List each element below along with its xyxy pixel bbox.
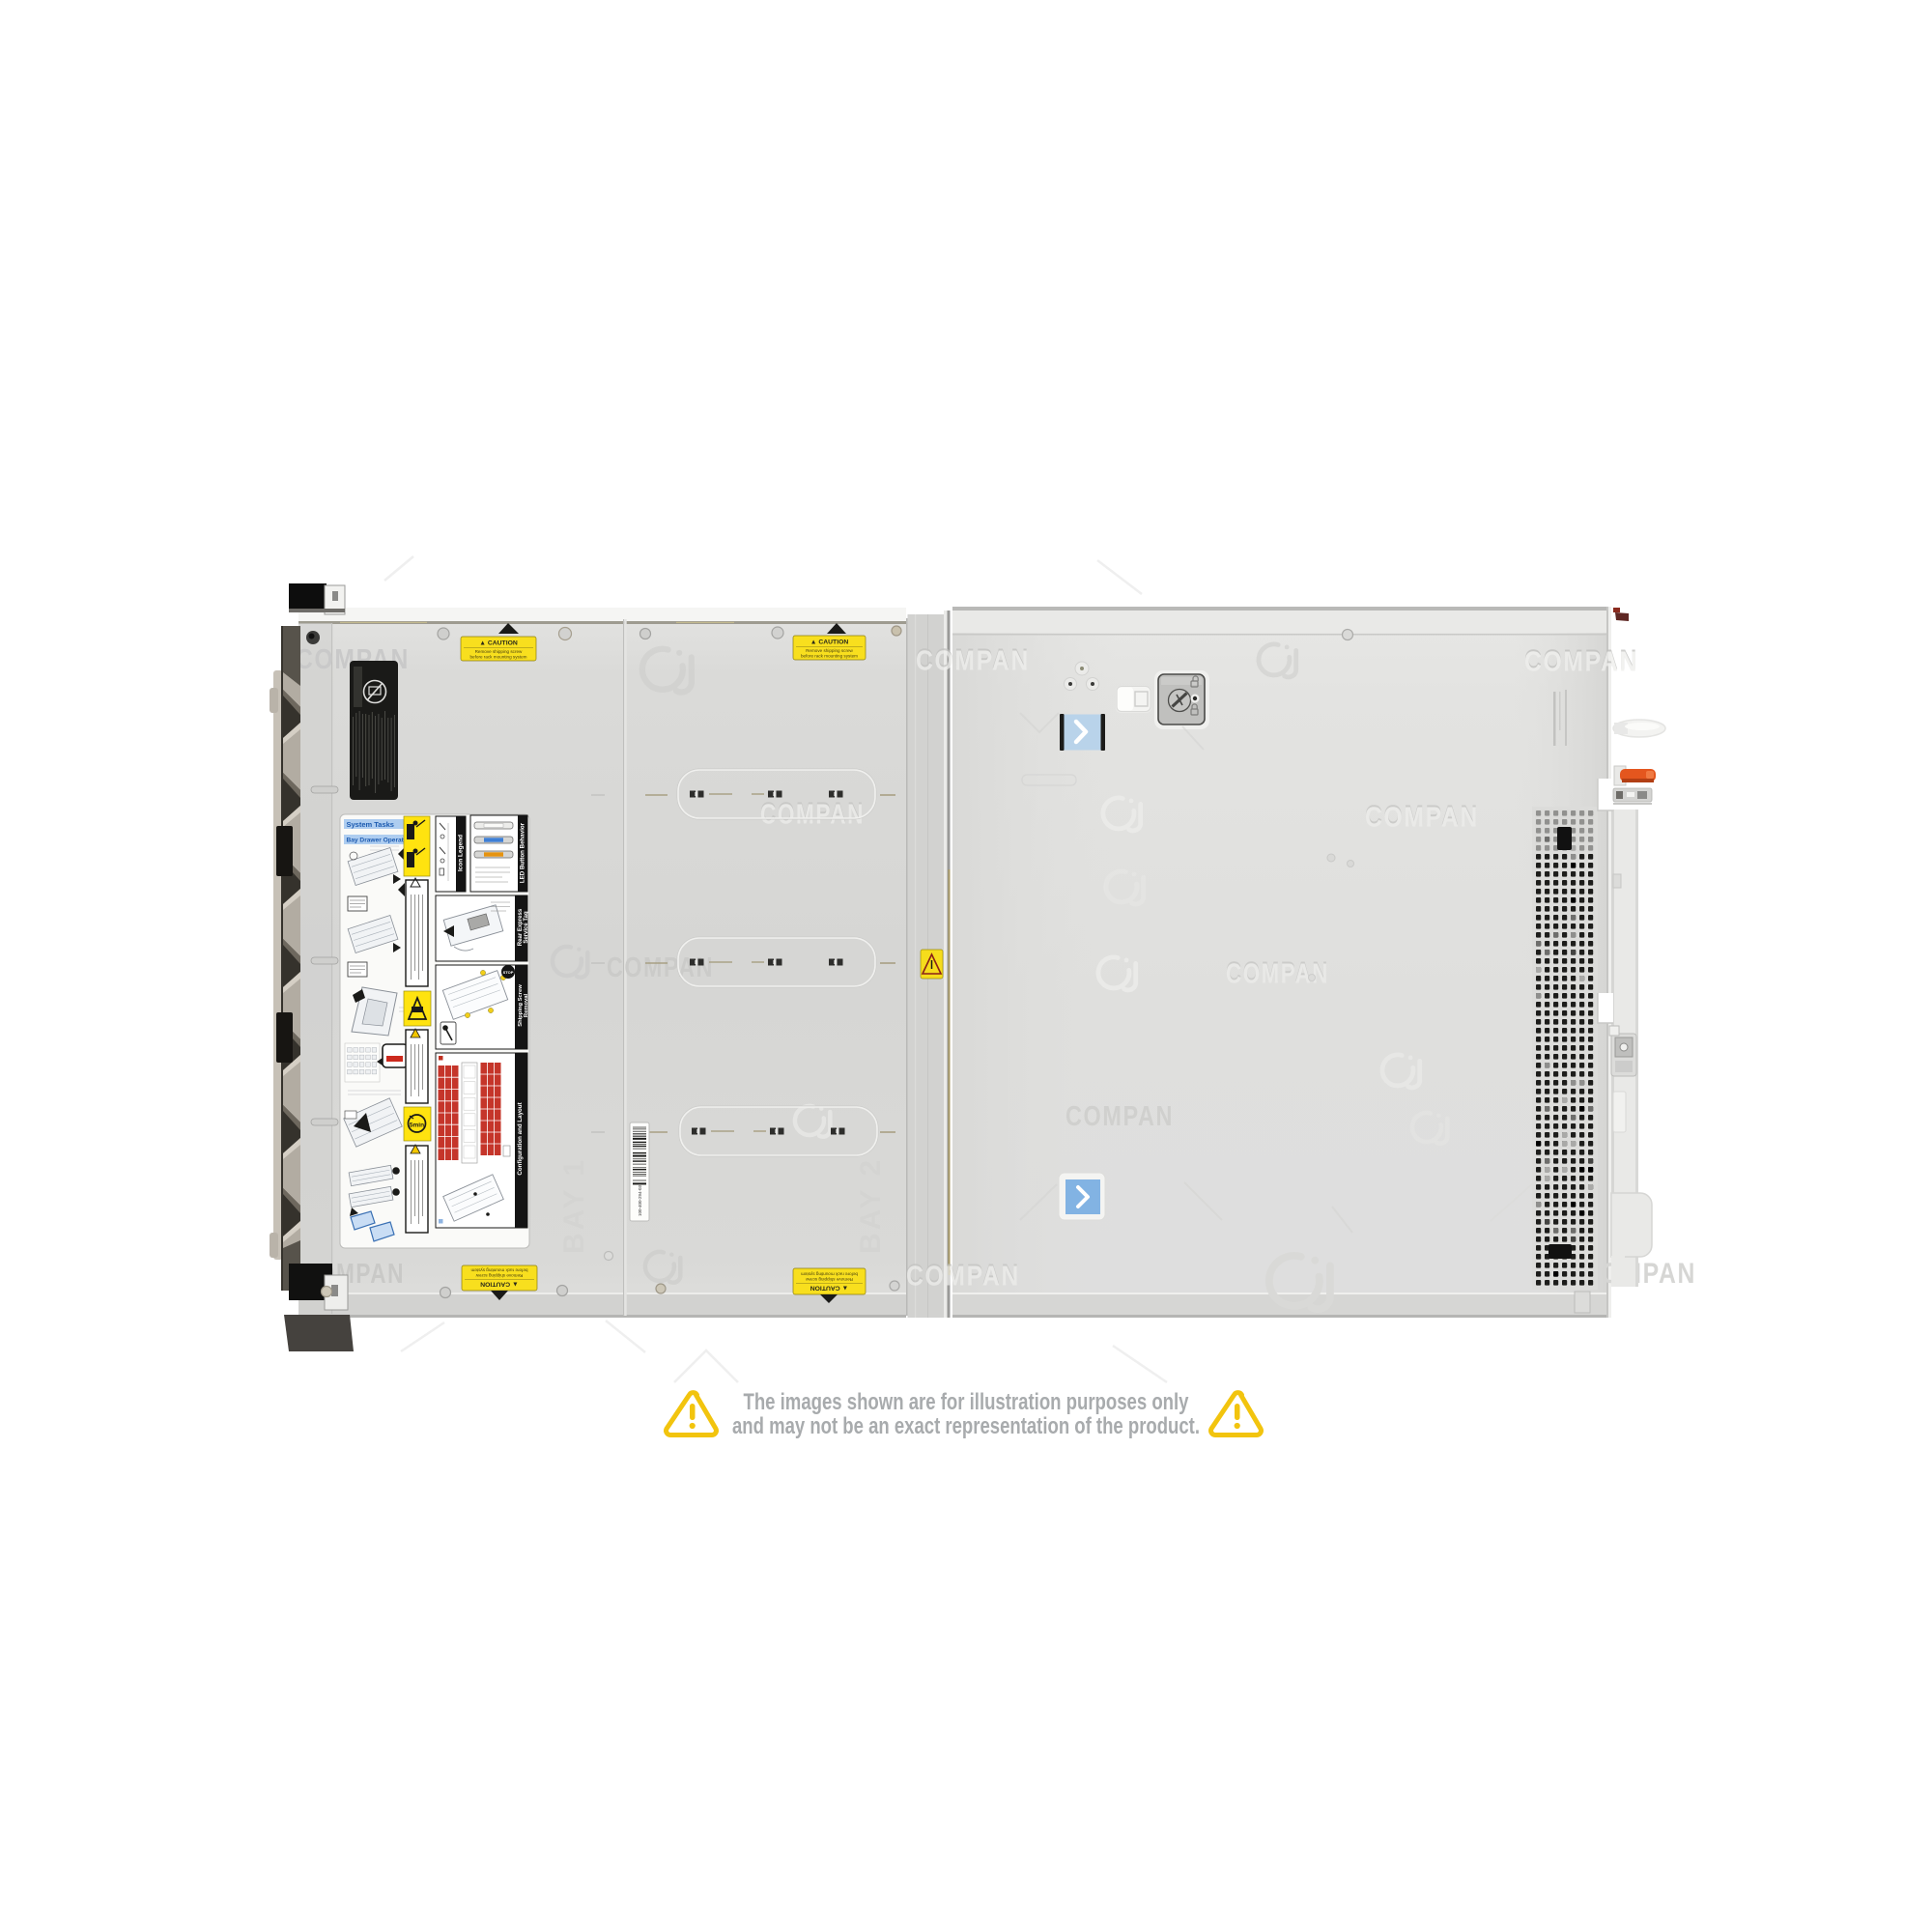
svg-text:BAY 2: BAY 2 [855, 1157, 887, 1254]
svg-text:COMPAN: COMPAN [916, 645, 1030, 676]
svg-text:▲ CAUTION: ▲ CAUTION [479, 640, 518, 647]
svg-text:Remove shipping screw: Remove shipping screw [475, 649, 523, 654]
svg-text:COMPAN: COMPAN [1065, 1101, 1174, 1132]
svg-text:Remove shipping screw: Remove shipping screw [475, 1273, 523, 1278]
svg-text:before rack mounting system: before rack mounting system [801, 654, 858, 659]
svg-text:before rack mounting system: before rack mounting system [470, 655, 527, 660]
svg-text:System Tasks: System Tasks [347, 820, 394, 829]
svg-text:COMPAN: COMPAN [760, 799, 865, 830]
svg-text:Icon Legend: Icon Legend [458, 835, 465, 871]
svg-text:COMPAN: COMPAN [1524, 646, 1638, 677]
svg-text:▲ CAUTION: ▲ CAUTION [480, 1281, 519, 1288]
svg-text:Service Tag: Service Tag [524, 911, 529, 944]
svg-text:100-400-294-03: 100-400-294-03 [638, 1184, 642, 1216]
svg-text:▲ CAUTION: ▲ CAUTION [810, 639, 849, 646]
svg-text:before rack mounting system: before rack mounting system [801, 1272, 858, 1277]
svg-text:BAY 1: BAY 1 [558, 1157, 590, 1254]
svg-text:COMPAN: COMPAN [1226, 958, 1329, 989]
svg-text:LED Button Behavior: LED Button Behavior [520, 822, 526, 883]
svg-text:COMPAN: COMPAN [1582, 1258, 1696, 1290]
svg-text:The images shown are for illus: The images shown are for illustration pu… [744, 1389, 1190, 1415]
svg-text:▲ CAUTION: ▲ CAUTION [810, 1285, 849, 1292]
svg-text:Remove shipping screw: Remove shipping screw [806, 648, 853, 653]
svg-text:Removal: Removal [524, 994, 529, 1018]
svg-text:STOP: STOP [503, 970, 514, 975]
svg-text:and may not be an exact repres: and may not be an exact representation o… [732, 1413, 1200, 1439]
svg-text:Remove shipping screw: Remove shipping screw [805, 1277, 852, 1282]
svg-text:COMPAN: COMPAN [1365, 802, 1479, 833]
svg-text:COMPAN: COMPAN [607, 952, 714, 983]
svg-text:before rack mounting system: before rack mounting system [470, 1268, 527, 1273]
svg-text:Bay Drawer Operation: Bay Drawer Operation [347, 838, 413, 844]
svg-text:Configuration and Layout: Configuration and Layout [517, 1102, 524, 1175]
svg-text:5min: 5min [410, 1122, 424, 1129]
svg-text:COMPAN: COMPAN [906, 1261, 1020, 1292]
